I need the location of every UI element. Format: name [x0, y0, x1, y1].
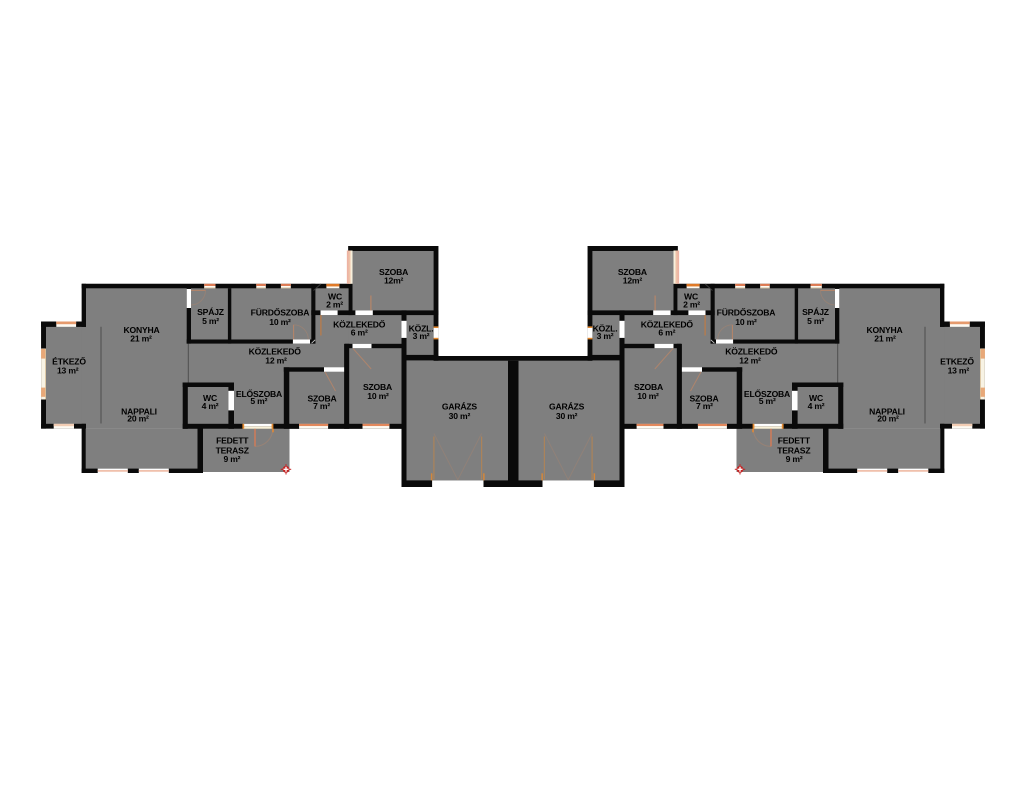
- svg-text:20 m²: 20 m²: [877, 413, 899, 423]
- svg-text:12 m²: 12 m²: [265, 356, 287, 366]
- svg-text:4 m²: 4 m²: [202, 401, 219, 411]
- svg-text:5 m²: 5 m²: [202, 316, 219, 326]
- svg-text:9 m²: 9 m²: [223, 454, 240, 464]
- svg-text:FÜRDŐSZOBA: FÜRDŐSZOBA: [251, 307, 310, 318]
- svg-text:12 m²: 12 m²: [739, 356, 761, 366]
- svg-text:30 m²: 30 m²: [449, 411, 471, 421]
- svg-text:6 m²: 6 m²: [658, 328, 675, 338]
- svg-text:6 m²: 6 m²: [351, 328, 368, 338]
- svg-text:5 m²: 5 m²: [759, 396, 776, 406]
- svg-text:FÜRDŐSZOBA: FÜRDŐSZOBA: [717, 307, 776, 318]
- svg-text:10 m²: 10 m²: [269, 317, 291, 327]
- svg-text:4 m²: 4 m²: [808, 401, 825, 411]
- svg-text:3 m²: 3 m²: [413, 331, 430, 341]
- svg-text:7 m²: 7 m²: [313, 401, 330, 411]
- svg-text:12m²: 12m²: [384, 276, 404, 286]
- svg-text:7 m²: 7 m²: [696, 401, 713, 411]
- svg-text:FEDETT: FEDETT: [778, 435, 811, 445]
- svg-text:2 m²: 2 m²: [326, 300, 343, 310]
- svg-text:3 m²: 3 m²: [597, 331, 614, 341]
- svg-text:13 m²: 13 m²: [57, 366, 79, 376]
- svg-text:10 m²: 10 m²: [637, 391, 659, 401]
- svg-text:12m²: 12m²: [623, 276, 643, 286]
- svg-text:2 m²: 2 m²: [683, 300, 700, 310]
- svg-text:5 m²: 5 m²: [250, 396, 267, 406]
- svg-text:21 m²: 21 m²: [130, 334, 152, 344]
- svg-text:5 m²: 5 m²: [807, 316, 824, 326]
- svg-text:30 m²: 30 m²: [556, 411, 578, 421]
- svg-text:13 m²: 13 m²: [948, 366, 970, 376]
- svg-text:10 m²: 10 m²: [367, 391, 389, 401]
- svg-text:21 m²: 21 m²: [874, 334, 896, 344]
- svg-text:20 m²: 20 m²: [127, 413, 149, 423]
- svg-text:FEDETT: FEDETT: [216, 435, 249, 445]
- svg-text:9 m²: 9 m²: [786, 454, 803, 464]
- svg-text:10 m²: 10 m²: [735, 317, 757, 327]
